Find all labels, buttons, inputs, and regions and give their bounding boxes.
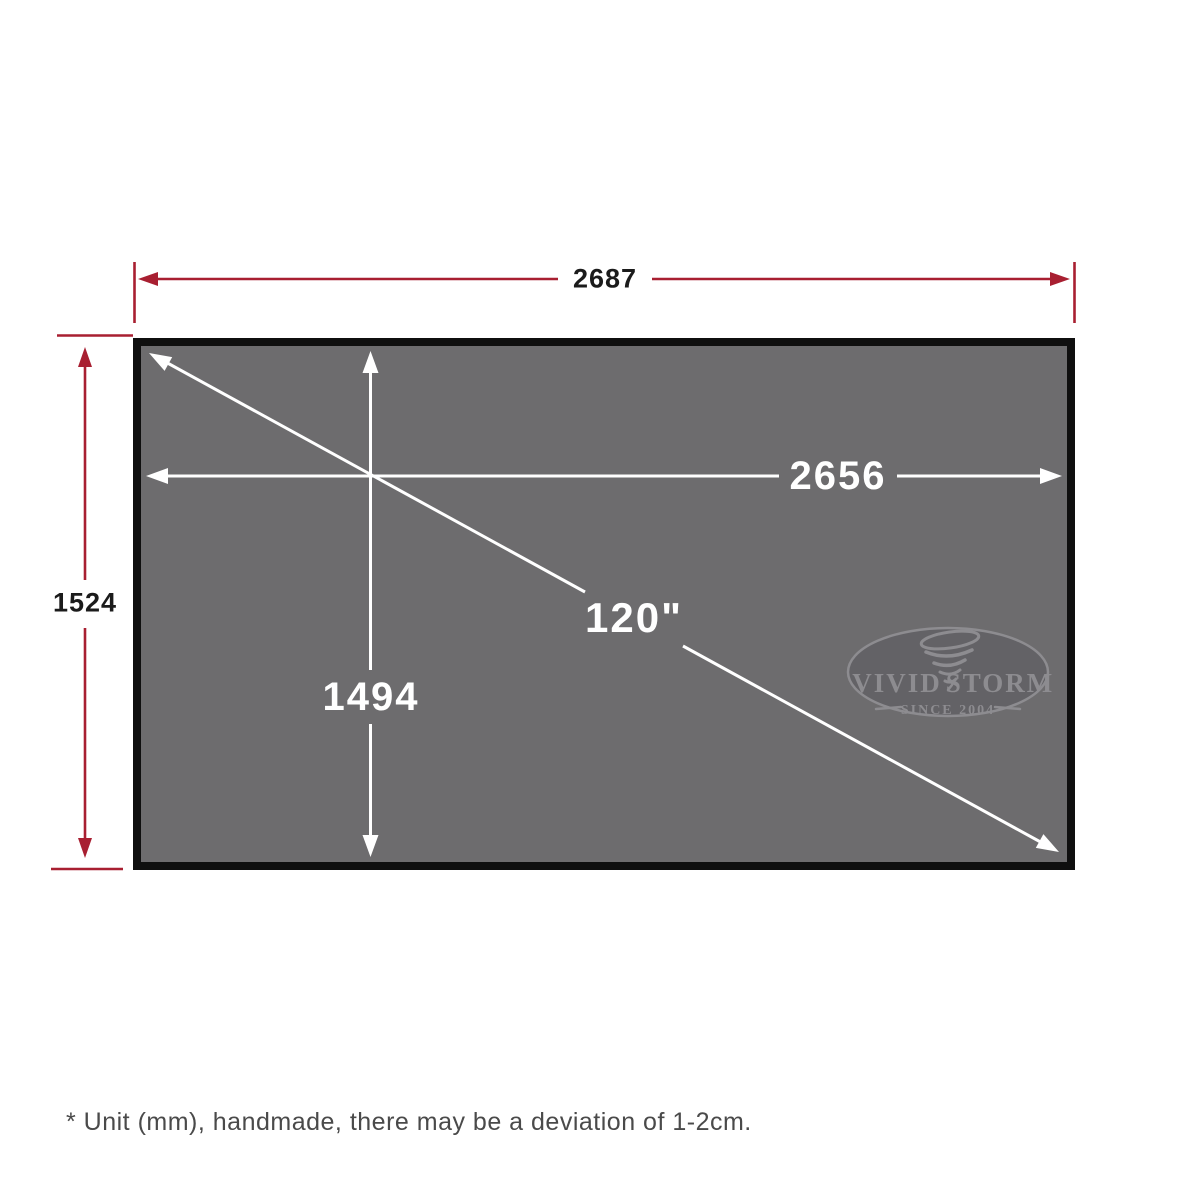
logo-brand-left: VIVID <box>852 668 942 698</box>
viewing-height-label: 1494 <box>323 677 420 717</box>
diagonal-label: 120" <box>585 597 683 639</box>
arrowhead-left-icon <box>138 272 158 286</box>
logo-tagline: SINCE 2004 <box>901 703 995 718</box>
arrowhead-right-icon <box>1050 272 1070 286</box>
outer-height-label: 1524 <box>53 590 117 617</box>
arrowhead-up-icon <box>78 347 92 367</box>
logo-brand-right: STORM <box>946 668 1055 698</box>
arrowhead-down-icon <box>78 838 92 858</box>
diagram-canvas: VIVID STORM SINCE 2004 2687 1524 2656 14… <box>0 0 1200 1200</box>
footnote: * Unit (mm), handmade, there may be a de… <box>66 1108 752 1137</box>
outer-width-label: 2687 <box>573 266 637 293</box>
viewing-width-label: 2656 <box>790 456 887 496</box>
